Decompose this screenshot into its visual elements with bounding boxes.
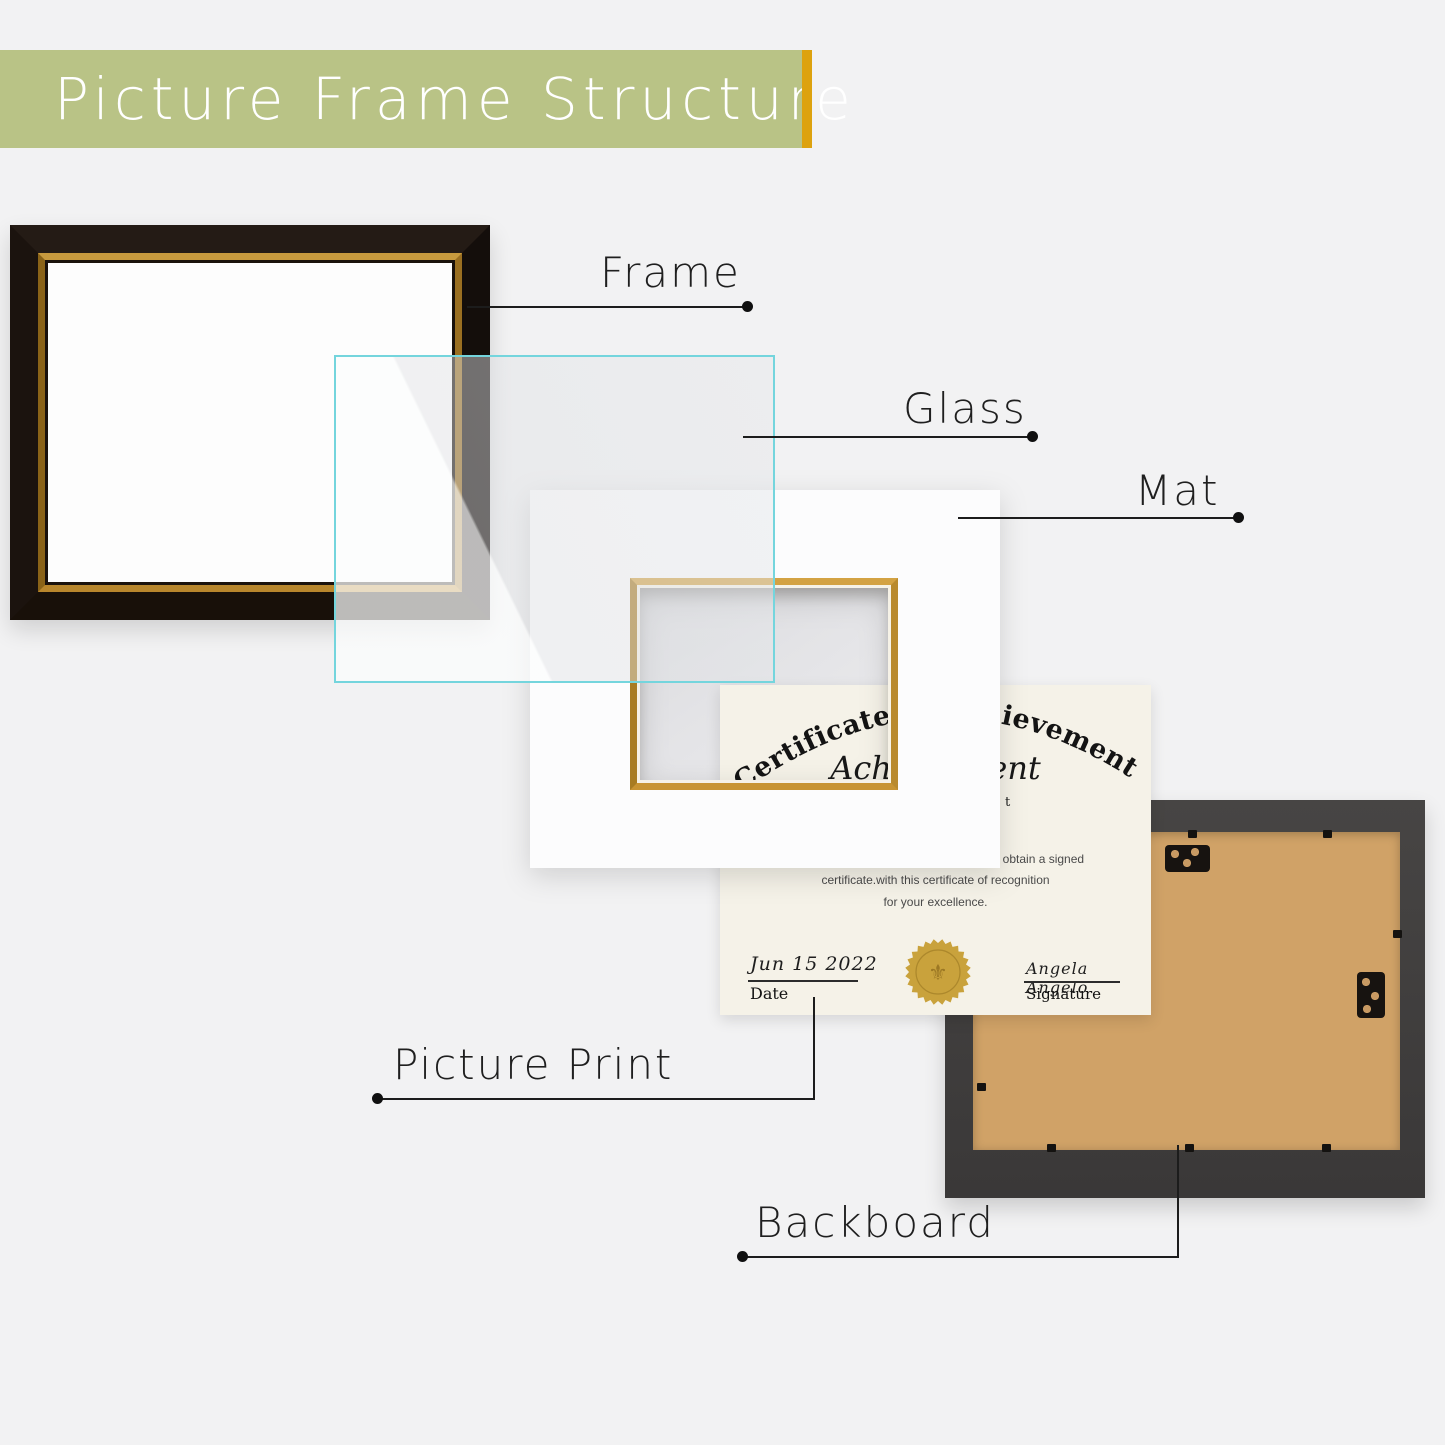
certificate-date-value: Jun 15 2022 — [750, 953, 878, 975]
backboard-leader-line — [743, 1256, 1179, 1258]
certificate-signature-label: Signature — [1026, 985, 1101, 1003]
mat-board — [898, 578, 1000, 790]
certificate-text-fragment: t — [1005, 795, 1010, 810]
mat-label: Mat — [1135, 466, 1219, 515]
gold-seal-icon: ⚜ — [903, 937, 973, 1007]
backboard-label: Backboard — [755, 1198, 995, 1247]
picture-print-leader-line — [378, 1098, 815, 1100]
infographic-canvas: Picture Frame Structure Certificate of A… — [0, 0, 1445, 1445]
retainer-clip-icon — [1185, 1144, 1194, 1152]
glass-label: Glass — [903, 384, 1027, 433]
glass-leader-dot — [1027, 431, 1038, 442]
picture-print-leader-line-vertical — [813, 997, 815, 1100]
date-underline — [748, 980, 858, 982]
frame-leader-dot — [742, 301, 753, 312]
retainer-clip-icon — [977, 1083, 986, 1091]
page-title: Picture Frame Structure — [0, 50, 802, 148]
glass-leader-line — [743, 436, 1034, 438]
backboard-leader-line-vertical — [1177, 1145, 1179, 1258]
frame-leader-line — [467, 306, 749, 308]
frame-label: Frame — [600, 248, 741, 297]
picture-print-leader-dot — [372, 1093, 383, 1104]
header-accent-bar — [802, 50, 812, 148]
glass-image — [334, 355, 775, 683]
retainer-clip-icon — [1047, 1144, 1056, 1152]
backboard-leader-dot — [737, 1251, 748, 1262]
mat-leader-dot — [1233, 512, 1244, 523]
sawtooth-hanger-icon — [1357, 972, 1385, 1018]
picture-print-label: Picture Print — [393, 1040, 673, 1089]
retainer-clip-icon — [1188, 830, 1197, 838]
retainer-clip-icon — [1323, 830, 1332, 838]
certificate-body-line: f obtain a signed — [996, 852, 1084, 866]
retainer-clip-icon — [1393, 930, 1402, 938]
fleur-de-lis-icon: ⚜ — [928, 961, 948, 986]
signature-underline — [1024, 981, 1120, 983]
header-banner: Picture Frame Structure — [0, 50, 802, 148]
certificate-body-line: certificate.with this certificate of rec… — [720, 873, 1151, 887]
certificate-date-label: Date — [750, 984, 788, 1003]
mat-leader-line — [958, 517, 1240, 519]
sawtooth-hanger-icon — [1165, 845, 1210, 872]
retainer-clip-icon — [1322, 1144, 1331, 1152]
mat-board — [530, 790, 1000, 868]
certificate-body-line: for your excellence. — [720, 895, 1151, 909]
